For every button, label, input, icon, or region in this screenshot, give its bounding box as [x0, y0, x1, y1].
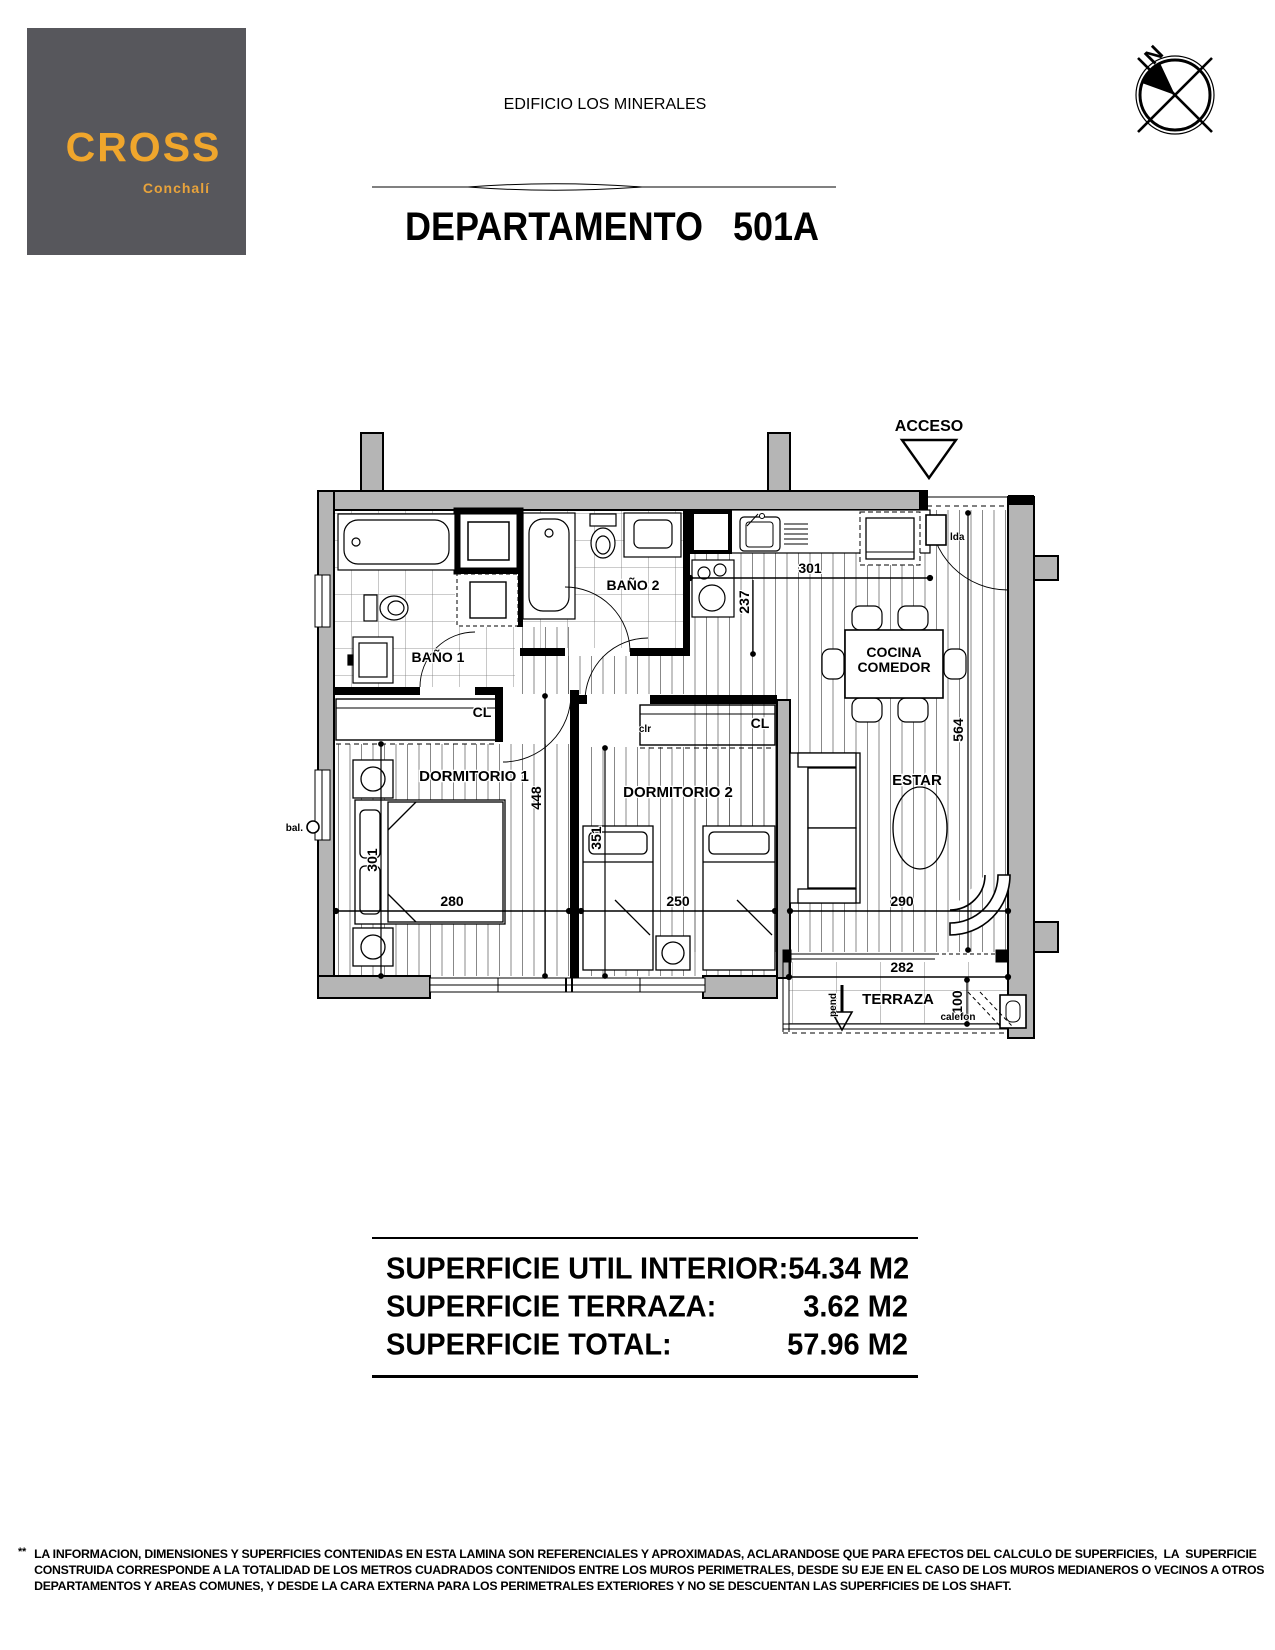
refrigerator: [860, 512, 920, 565]
svg-text:301: 301: [798, 560, 822, 576]
label-bano2: BAÑO 2: [607, 576, 660, 593]
svg-text:564: 564: [950, 718, 966, 742]
svg-text:280: 280: [440, 893, 464, 909]
svg-text:250: 250: [666, 893, 690, 909]
svg-text:301: 301: [364, 848, 380, 872]
disclaimer-text: LA INFORMACION, DIMENSIONES Y SUPERFICIE…: [34, 1546, 1264, 1594]
nightstand-dorm1-top: [353, 760, 393, 798]
nightstand-dorm2: [656, 936, 690, 970]
surface-value: 54.34 M2: [788, 1249, 909, 1289]
north-compass: N: [1090, 20, 1260, 180]
svg-text:100: 100: [949, 990, 965, 1014]
toilet-bano1: [364, 595, 408, 621]
label-cocina-2: COMEDOR: [857, 659, 930, 675]
label-calefon: calefon: [940, 1012, 975, 1023]
disclaimer-line: DEPARTAMENTOS Y AREAS COMUNES, Y DESDE L…: [34, 1578, 1264, 1594]
shaft: [457, 511, 520, 571]
vanity-bano1: [348, 637, 393, 683]
brand-logo: CROSS Conchalí: [27, 28, 246, 255]
label-cl-dorm1: CL: [473, 704, 492, 720]
toilet-bano2: [590, 514, 616, 558]
vanity-shaft-column: [457, 574, 518, 626]
nightstand-dorm1-bottom: [353, 928, 393, 966]
bathtub-bano2: [523, 513, 575, 619]
svg-text:351: 351: [588, 826, 604, 850]
floor-plan: bal.: [270, 400, 1080, 1060]
table-row: SUPERFICIE TERRAZA: 3.62 M2: [386, 1287, 908, 1327]
brand-name: CROSS: [27, 124, 246, 171]
bathtub-bano1: [338, 514, 455, 570]
surface-value: 57.96 M2: [787, 1325, 908, 1365]
svg-text:448: 448: [528, 786, 544, 810]
svg-text:237: 237: [736, 590, 752, 614]
disclaimer-marker: **: [18, 1546, 26, 1594]
svg-text:bal.: bal.: [286, 823, 303, 834]
surface-label: SUPERFICIE TOTAL:: [386, 1325, 672, 1365]
sink-bano2: [624, 513, 681, 557]
svg-text:lda: lda: [950, 532, 965, 543]
svg-text:282: 282: [890, 959, 914, 975]
svg-text:290: 290: [890, 893, 914, 909]
sofa: [790, 753, 860, 903]
svg-text:pend: pend: [828, 993, 839, 1017]
wall-end-cap: [919, 491, 928, 510]
wall-end-cap: [1008, 495, 1034, 505]
title-divider: [372, 180, 836, 194]
surface-label: SUPERFICIE UTIL INTERIOR:: [386, 1249, 788, 1289]
disclaimer-line: LA INFORMACION, DIMENSIONES Y SUPERFICIE…: [34, 1546, 1264, 1562]
surface-table: SUPERFICIE UTIL INTERIOR: 54.34 M2 SUPER…: [372, 1237, 918, 1378]
label-dorm2: DORMITORIO 2: [623, 784, 733, 801]
unit-title: DEPARTAMENTO 501A: [287, 204, 937, 250]
label-dorm1: DORMITORIO 1: [419, 768, 529, 785]
disclaimer: ** LA INFORMACION, DIMENSIONES Y SUPERFI…: [18, 1546, 1228, 1594]
label-terraza: TERRAZA: [862, 991, 934, 1008]
bed-dorm2-right: [703, 826, 775, 970]
disclaimer-line: CONSTRUIDA CORRESPONDE A LA TOTALIDAD DE…: [34, 1562, 1264, 1578]
stove: [692, 560, 734, 617]
surface-value: 3.62 M2: [803, 1287, 908, 1327]
label-clr: clr: [639, 724, 651, 735]
surface-label: SUPERFICIE TERRAZA:: [386, 1287, 716, 1327]
table-row: SUPERFICIE UTIL INTERIOR: 54.34 M2: [386, 1249, 908, 1289]
access-marker: ACCESO: [895, 418, 963, 478]
label-bano1: BAÑO 1: [412, 648, 465, 665]
label-cl-dorm2: CL: [751, 715, 770, 731]
label-estar: ESTAR: [892, 772, 942, 789]
label-cocina-1: COCINA: [866, 644, 921, 660]
brand-location: Conchalí: [143, 180, 210, 196]
balcony-window-label: bal.: [286, 821, 319, 834]
svg-text:ACCESO: ACCESO: [895, 418, 963, 435]
table-row: SUPERFICIE TOTAL: 57.96 M2: [386, 1325, 908, 1365]
building-title: EDIFICIO LOS MINERALES: [280, 96, 930, 114]
plan-sheet: CROSS Conchalí EDIFICIO LOS MINERALES DE…: [0, 0, 1275, 1650]
